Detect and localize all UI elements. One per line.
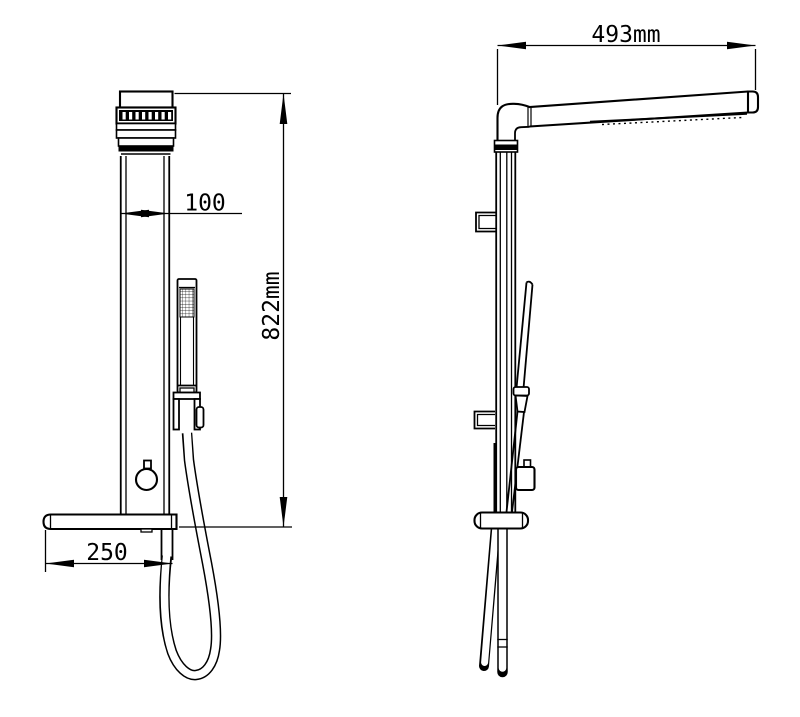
overhead-shower-arm <box>498 92 759 143</box>
panel-width-label: 100 <box>184 191 226 217</box>
dimension-head-width: 493mm <box>498 22 756 105</box>
panel-height-label: 822mm <box>259 271 285 340</box>
elbow-connector <box>495 141 518 153</box>
wall-bracket-upper <box>476 213 497 232</box>
holder-cap <box>514 387 530 396</box>
head-grille <box>119 110 173 121</box>
control-knob <box>136 461 157 491</box>
head-band-2 <box>117 130 176 138</box>
hand-shower-spray-face <box>180 289 194 317</box>
rain-shower-head <box>117 92 176 155</box>
arrow-down-icon <box>280 497 288 527</box>
arrow-left-icon <box>498 42 527 50</box>
head-band-3 <box>119 138 174 146</box>
knob-dial <box>136 469 157 490</box>
shelf-width-label: 250 <box>86 540 128 566</box>
holder-knob <box>197 407 204 428</box>
hand-shower-holder <box>174 393 204 430</box>
wall-bracket-lower <box>475 412 496 429</box>
hose-profile <box>484 515 503 672</box>
head-width-label: 493mm <box>591 22 660 48</box>
hand-shower <box>178 279 197 398</box>
dimension-panel-width: 100 <box>121 191 242 218</box>
arrow-right-icon <box>727 42 756 50</box>
shower-panel-drawing: 100 822mm 250 <box>0 0 800 717</box>
arm-end-cap <box>748 92 758 113</box>
soap-shelf <box>44 515 177 533</box>
arrow-left-icon <box>46 560 75 568</box>
shelf-drain-tick <box>141 529 152 532</box>
technical-drawing-canvas: 100 822mm 250 <box>0 0 800 717</box>
front-view: 100 822mm 250 <box>44 92 293 676</box>
knob-stem <box>144 461 151 469</box>
arrow-up-icon <box>280 94 288 125</box>
soap-shelf-profile <box>475 513 529 529</box>
head-band-1 <box>117 124 176 131</box>
side-view: 493mm <box>475 22 759 672</box>
arrow-right-icon <box>141 210 169 217</box>
head-dark-band <box>119 146 174 152</box>
dimension-shelf-width: 250 <box>46 530 173 572</box>
control-knob-profile <box>516 460 535 490</box>
head-top-box <box>120 92 173 108</box>
holder-body <box>516 396 528 413</box>
